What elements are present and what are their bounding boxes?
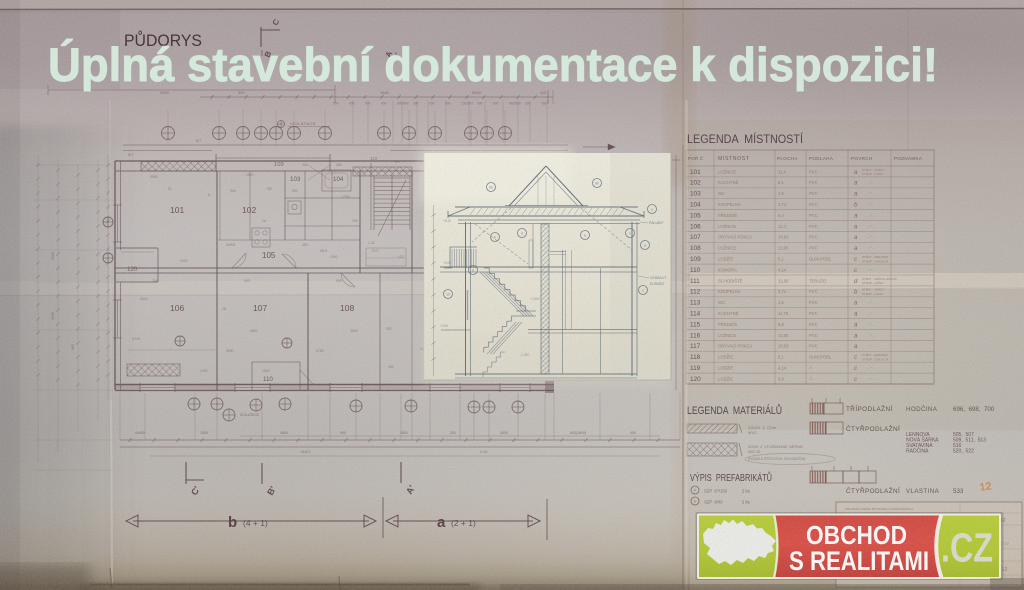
- svg-text:Úplná stavební dokumentace k d: Úplná stavební dokumentace k dispozici!: [48, 38, 938, 91]
